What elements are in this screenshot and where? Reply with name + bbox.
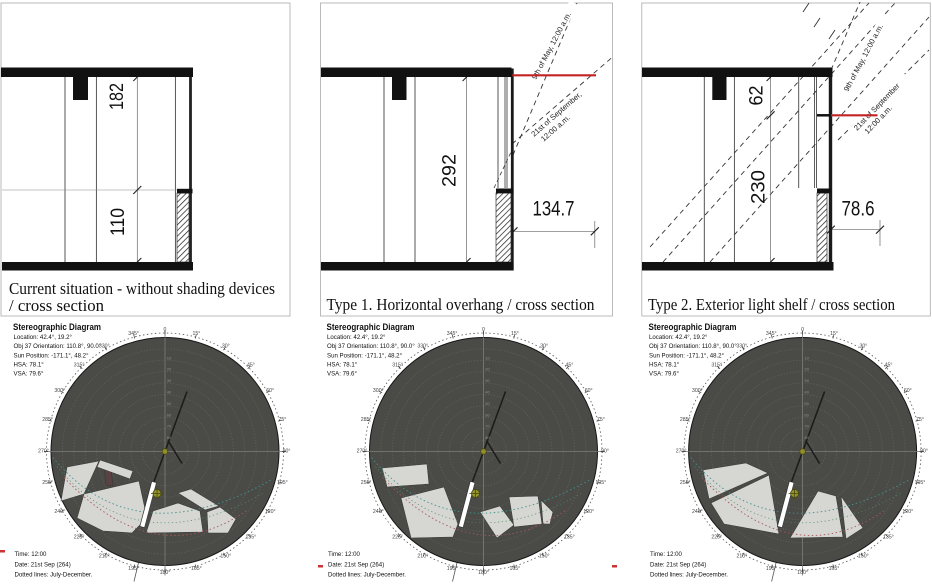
svg-text:Type 2. Exterior light shelf /: Type 2. Exterior light shelf / cross sec… bbox=[648, 295, 895, 314]
svg-text:195°: 195° bbox=[447, 566, 458, 572]
svg-text:80: 80 bbox=[804, 435, 809, 440]
svg-text:Time: 12:00: Time: 12:00 bbox=[328, 551, 361, 558]
svg-text:300°: 300° bbox=[373, 388, 384, 394]
svg-text:30: 30 bbox=[804, 378, 809, 383]
svg-text:75°: 75° bbox=[916, 417, 924, 423]
svg-text:300°: 300° bbox=[54, 388, 65, 394]
svg-text:240°: 240° bbox=[692, 509, 703, 515]
svg-text:345°: 345° bbox=[447, 331, 458, 337]
svg-text:Obj 37 Orientation: 110.8°, 90: Obj 37 Orientation: 110.8°, 90.0° bbox=[327, 343, 415, 350]
svg-text:Type 1. Horizontal overhang /: Type 1. Horizontal overhang / cross sect… bbox=[327, 295, 595, 314]
svg-text:Sun Position: -171.1°, 48.2°: Sun Position: -171.1°, 48.2° bbox=[649, 352, 725, 359]
svg-text:270°: 270° bbox=[676, 449, 687, 455]
svg-text:80: 80 bbox=[485, 435, 490, 440]
svg-text:0: 0 bbox=[482, 327, 485, 333]
svg-text:Obj 37 Orientation: 110.8°, 90: Obj 37 Orientation: 110.8°, 90.0° bbox=[649, 343, 737, 350]
svg-text:255°: 255° bbox=[361, 480, 372, 486]
svg-text:150°: 150° bbox=[539, 554, 550, 560]
svg-text:50: 50 bbox=[485, 401, 490, 406]
svg-text:Time: 12:00: Time: 12:00 bbox=[15, 551, 48, 558]
svg-text:Location: 42.4°, 19.2°: Location: 42.4°, 19.2° bbox=[649, 334, 708, 341]
svg-text:210°: 210° bbox=[99, 554, 110, 560]
svg-text:HSA: 78.1°: HSA: 78.1° bbox=[327, 361, 358, 368]
svg-text:78.6: 78.6 bbox=[842, 198, 875, 221]
svg-text:60°: 60° bbox=[266, 388, 274, 394]
svg-text:60°: 60° bbox=[904, 388, 912, 394]
svg-text:VSA: 79.6°: VSA: 79.6° bbox=[649, 371, 679, 378]
svg-text:60°: 60° bbox=[585, 388, 593, 394]
svg-text:Location: 42.4°, 19.2°: Location: 42.4°, 19.2° bbox=[14, 334, 73, 341]
svg-text:180°: 180° bbox=[160, 570, 171, 576]
svg-text:345°: 345° bbox=[766, 331, 777, 337]
svg-text:60: 60 bbox=[485, 412, 490, 417]
svg-text:Dotted lines: July-December.: Dotted lines: July-December. bbox=[650, 572, 728, 579]
svg-text:Sun Position: -171.1°, 48.2°: Sun Position: -171.1°, 48.2° bbox=[14, 352, 90, 359]
svg-text:40: 40 bbox=[804, 390, 809, 395]
svg-text:270°: 270° bbox=[38, 449, 49, 455]
svg-text:105°: 105° bbox=[277, 480, 288, 486]
svg-text:Stereographic Diagram: Stereographic Diagram bbox=[13, 322, 101, 332]
svg-text:Location: 42.4°, 19.2°: Location: 42.4°, 19.2° bbox=[327, 334, 386, 341]
svg-text:90°: 90° bbox=[920, 449, 928, 455]
svg-text:195°: 195° bbox=[766, 566, 777, 572]
svg-text:HSA: 78.1°: HSA: 78.1° bbox=[649, 361, 680, 368]
svg-text:135°: 135° bbox=[246, 534, 257, 540]
svg-text:30: 30 bbox=[485, 378, 490, 383]
svg-text:45°: 45° bbox=[885, 363, 893, 369]
svg-text:Dotted lines: July-December.: Dotted lines: July-December. bbox=[15, 572, 93, 579]
svg-text:40: 40 bbox=[485, 390, 490, 395]
svg-text:62: 62 bbox=[746, 86, 768, 106]
svg-text:210°: 210° bbox=[417, 554, 428, 560]
svg-text:195°: 195° bbox=[128, 566, 139, 572]
svg-text:292: 292 bbox=[439, 154, 461, 187]
svg-text:75°: 75° bbox=[278, 417, 286, 423]
svg-text:VSA: 79.6°: VSA: 79.6° bbox=[14, 371, 44, 378]
svg-text:165°: 165° bbox=[829, 566, 840, 572]
svg-text:15°: 15° bbox=[192, 331, 200, 337]
svg-text:90°: 90° bbox=[283, 449, 291, 455]
svg-text:150°: 150° bbox=[220, 554, 231, 560]
svg-text:Stereographic Diagram: Stereographic Diagram bbox=[649, 322, 737, 332]
svg-text:Time: 12:00: Time: 12:00 bbox=[650, 551, 683, 558]
svg-text:75°: 75° bbox=[597, 417, 605, 423]
svg-text:10: 10 bbox=[167, 355, 172, 360]
svg-text:80: 80 bbox=[167, 435, 172, 440]
svg-text:50: 50 bbox=[804, 401, 809, 406]
svg-text:90°: 90° bbox=[601, 449, 609, 455]
svg-text:315°: 315° bbox=[74, 363, 85, 369]
svg-text:20: 20 bbox=[485, 367, 490, 372]
svg-text:255°: 255° bbox=[680, 480, 691, 486]
svg-text:120°: 120° bbox=[265, 509, 276, 515]
svg-text:HSA: 78.1°: HSA: 78.1° bbox=[14, 361, 45, 368]
svg-text:30°: 30° bbox=[540, 343, 548, 349]
svg-text:120°: 120° bbox=[902, 509, 913, 515]
svg-text:180°: 180° bbox=[797, 570, 808, 576]
svg-text:110: 110 bbox=[107, 208, 129, 236]
svg-text:60: 60 bbox=[804, 412, 809, 417]
svg-text:315°: 315° bbox=[711, 363, 722, 369]
svg-text:330°: 330° bbox=[99, 343, 110, 349]
svg-text:15°: 15° bbox=[511, 331, 519, 337]
svg-text:330°: 330° bbox=[417, 343, 428, 349]
svg-text:60: 60 bbox=[167, 412, 172, 417]
svg-text:70: 70 bbox=[167, 424, 172, 429]
svg-text:270°: 270° bbox=[357, 449, 368, 455]
svg-text:165°: 165° bbox=[191, 566, 202, 572]
svg-text:20: 20 bbox=[804, 367, 809, 372]
svg-text:225°: 225° bbox=[711, 534, 722, 540]
svg-text:210°: 210° bbox=[737, 554, 748, 560]
svg-text:225°: 225° bbox=[74, 534, 85, 540]
svg-text:120°: 120° bbox=[583, 509, 594, 515]
svg-text:315°: 315° bbox=[392, 363, 403, 369]
svg-text:Date: 21st Sep (264): Date: 21st Sep (264) bbox=[650, 561, 706, 568]
svg-text:285°: 285° bbox=[680, 417, 691, 423]
svg-text:230: 230 bbox=[748, 170, 770, 204]
svg-text:Obj 37 Orientation: 110.8°, 90: Obj 37 Orientation: 110.8°, 90.0° bbox=[14, 343, 102, 350]
svg-text:10: 10 bbox=[485, 355, 490, 360]
svg-text:330°: 330° bbox=[736, 343, 747, 349]
svg-text:50: 50 bbox=[167, 401, 172, 406]
svg-text:45°: 45° bbox=[247, 363, 255, 369]
svg-text:Sun Position: -171.1°, 48.2°: Sun Position: -171.1°, 48.2° bbox=[327, 352, 403, 359]
svg-text:70: 70 bbox=[485, 424, 490, 429]
svg-text:105°: 105° bbox=[596, 480, 607, 486]
svg-text:285°: 285° bbox=[361, 417, 372, 423]
svg-text:300°: 300° bbox=[692, 388, 703, 394]
svg-text:0: 0 bbox=[164, 327, 167, 333]
svg-text:30°: 30° bbox=[222, 343, 230, 349]
svg-text:182: 182 bbox=[106, 83, 128, 110]
svg-text:Dotted lines: July-December.: Dotted lines: July-December. bbox=[328, 572, 406, 579]
svg-text:105°: 105° bbox=[915, 480, 926, 486]
svg-text:Stereographic Diagram: Stereographic Diagram bbox=[327, 322, 415, 332]
svg-text:135°: 135° bbox=[564, 534, 575, 540]
svg-text:30°: 30° bbox=[859, 343, 867, 349]
svg-text:240°: 240° bbox=[373, 509, 384, 515]
svg-text:165°: 165° bbox=[510, 566, 521, 572]
svg-text:Date: 21st Sep (264): Date: 21st Sep (264) bbox=[328, 561, 384, 568]
svg-text:15°: 15° bbox=[830, 331, 838, 337]
svg-text:40: 40 bbox=[167, 390, 172, 395]
svg-text:255°: 255° bbox=[42, 480, 53, 486]
svg-text:30: 30 bbox=[167, 378, 172, 383]
svg-text:240°: 240° bbox=[54, 509, 65, 515]
svg-text:VSA: 79.6°: VSA: 79.6° bbox=[327, 371, 357, 378]
svg-text:150°: 150° bbox=[858, 554, 869, 560]
svg-text:134.7: 134.7 bbox=[533, 198, 575, 221]
svg-text:45°: 45° bbox=[565, 363, 573, 369]
svg-text:10: 10 bbox=[804, 355, 809, 360]
svg-text:20: 20 bbox=[167, 367, 172, 372]
svg-text:0: 0 bbox=[801, 327, 804, 333]
svg-text:135°: 135° bbox=[883, 534, 894, 540]
svg-text:/ cross section: / cross section bbox=[9, 296, 104, 315]
svg-text:345°: 345° bbox=[128, 331, 139, 337]
svg-text:285°: 285° bbox=[42, 417, 53, 423]
svg-text:180°: 180° bbox=[478, 570, 489, 576]
svg-text:70: 70 bbox=[804, 424, 809, 429]
svg-text:225°: 225° bbox=[392, 534, 403, 540]
svg-text:Date: 21st Sep (264): Date: 21st Sep (264) bbox=[15, 561, 71, 568]
